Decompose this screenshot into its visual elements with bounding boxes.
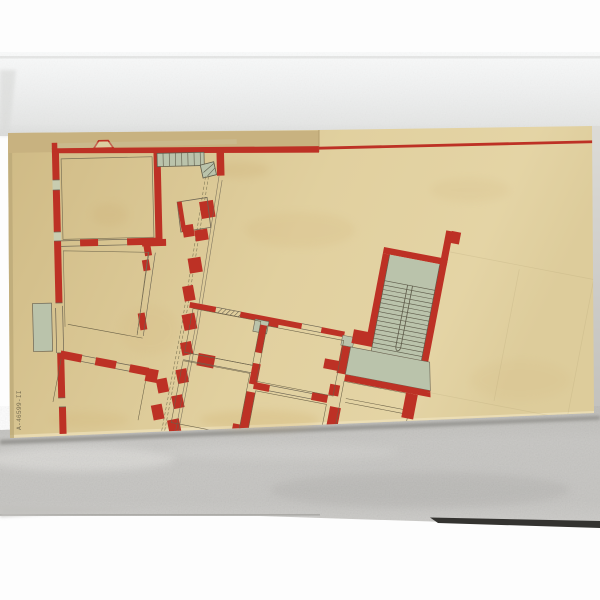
svg-text:A-46599-II: A-46599-II [16,390,23,430]
